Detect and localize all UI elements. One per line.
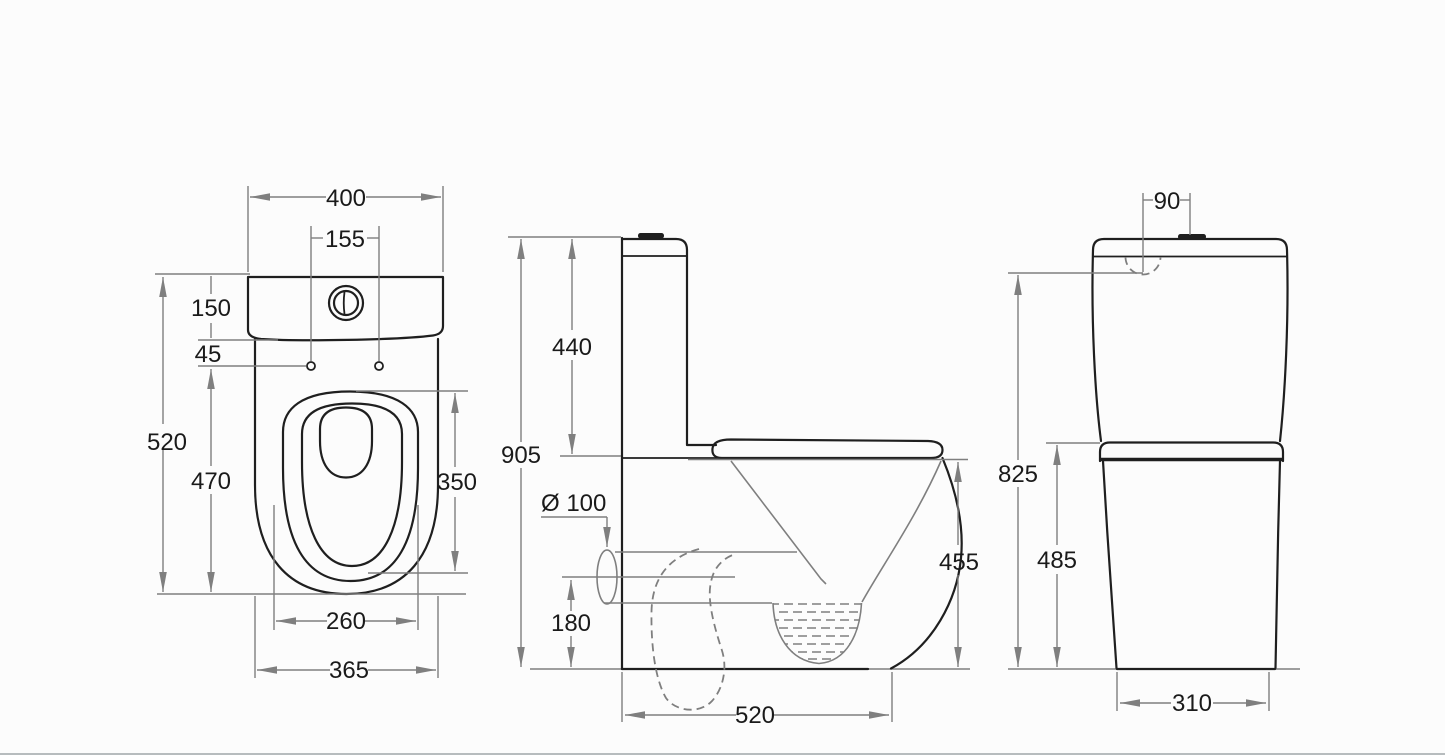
dim-cutout-length: 350 [437,393,477,571]
dim-outlet-centre-height: 180 [551,580,591,667]
dim-label-150: 150 [191,295,231,322]
rear-inlet-fitting [1178,234,1206,240]
dim-overall-depth: 520 [147,277,187,592]
dim-seat-height: 485 [1037,445,1077,667]
rear-view: 90 825 485 310 [998,188,1300,717]
side-view: 905 440 Ø 100 180 455 [501,233,979,729]
dim-label-520-side: 520 [735,702,775,729]
dim-cistern-height: 440 [552,239,592,454]
fixing-hole-right [375,362,383,370]
dim-hole-to-front: 470 [191,369,231,592]
dim-label-260: 260 [326,608,366,635]
dim-bowl-height: 455 [939,462,979,667]
bowl-funnel-line [731,461,826,584]
dim-label-470: 470 [191,468,231,495]
flush-button-split-line [344,292,345,314]
top-view: 400 155 150 45 520 [147,185,477,684]
dim-label-350: 350 [437,469,477,496]
drawing-canvas: 400 155 150 45 520 [0,0,1445,755]
seat-opening-outline [302,404,402,567]
dim-label-440: 440 [552,334,592,361]
dim-label-90: 90 [1154,188,1181,215]
dim-label-45: 45 [195,341,222,368]
dim-label-455: 455 [939,549,979,576]
side-flush-button [638,233,664,239]
dim-label-365: 365 [329,657,369,684]
dim-label-180: 180 [551,610,591,637]
dim-label-400: 400 [326,185,366,212]
dim-label-905: 905 [501,442,541,469]
bowl-inner-curve [862,461,941,602]
dim-cutout-width: 260 [274,505,418,635]
side-cistern-outline [622,239,716,445]
dim-cistern-depth: 150 [191,276,231,338]
side-seat-lid [712,440,942,459]
dim-base-depth: 520 [622,672,892,729]
dim-label-155: 155 [325,226,365,253]
dim-label-310: 310 [1172,690,1212,717]
rear-body-right-edge [1276,461,1281,668]
trap-outlet-outline [320,408,372,478]
rear-tank-outline [1092,239,1287,441]
dim-shoulder-height: 825 [998,275,1038,667]
toilet-dimension-drawing: 400 155 150 45 520 [0,0,1445,755]
fixing-hole-left [307,362,315,370]
dim-overall-height: 905 [501,239,541,667]
water-hatch [765,604,866,659]
dim-label-o100: Ø 100 [541,490,606,517]
dim-label-520-plan: 520 [147,429,187,456]
dim-inlet-offset: 90 [1143,188,1190,272]
rear-body-left-edge [1103,461,1117,668]
dim-fixing-hole-offset: 45 [195,341,222,368]
dim-outlet-diameter: Ø 100 [541,490,607,547]
dim-label-485: 485 [1037,547,1077,574]
dim-label-825: 825 [998,461,1038,488]
dim-base-width: 310 [1117,672,1269,717]
flush-button-inner-ring-icon [334,291,358,315]
s-trap-dashed-outline [651,549,734,710]
